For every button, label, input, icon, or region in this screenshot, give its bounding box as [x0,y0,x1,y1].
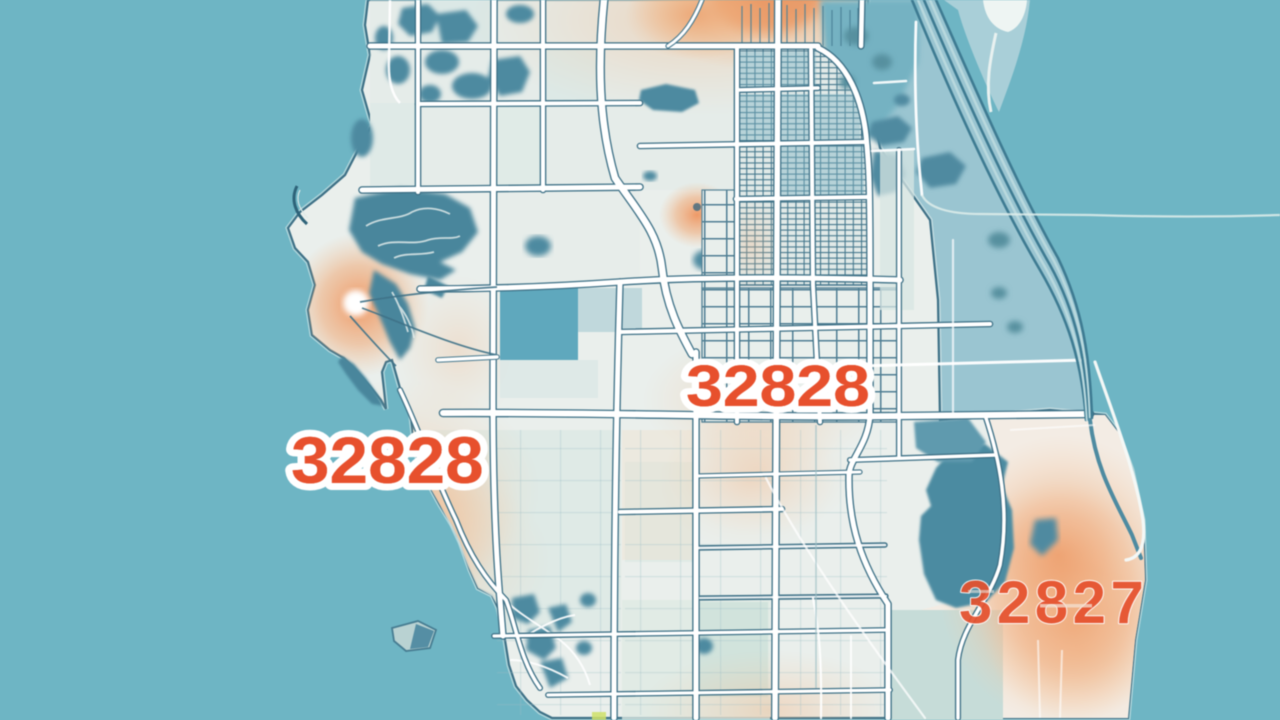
svg-text:32828: 32828 [291,424,484,497]
svg-text:32828: 32828 [686,355,870,419]
svg-text:32827: 32827 [959,569,1148,636]
